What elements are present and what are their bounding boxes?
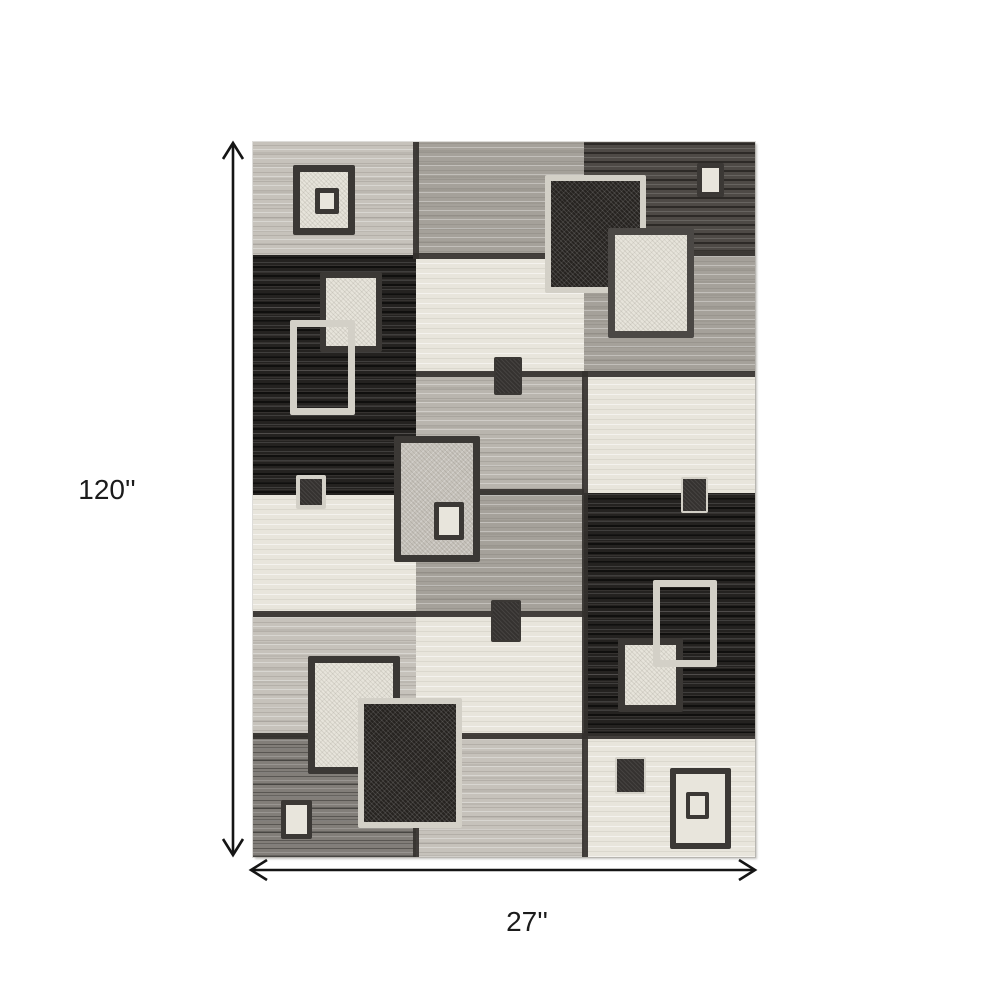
rug-seam bbox=[253, 611, 586, 617]
rug-motif-right-small-dark bbox=[681, 477, 708, 513]
rug-image bbox=[253, 142, 755, 857]
rug-panel-right-cream bbox=[584, 372, 755, 495]
rug-motif-br-small-dark bbox=[615, 757, 646, 794]
rug-motif-left-small-dark bbox=[296, 475, 326, 509]
width-dimension-label: 27'' bbox=[477, 908, 577, 936]
height-dimension-label: 120'' bbox=[57, 476, 157, 504]
rug-seam bbox=[413, 142, 419, 259]
rug-motif-right-outline-square bbox=[653, 580, 717, 667]
rug-motif-br-square-inner bbox=[686, 792, 709, 819]
rug-seam bbox=[582, 613, 588, 857]
rug-motif-bl-dark-square bbox=[358, 698, 462, 828]
rug-motif-center-small-dark-2 bbox=[491, 600, 521, 642]
rug-motif-center-big-inner bbox=[434, 502, 464, 540]
width-dimension-arrow bbox=[242, 852, 764, 888]
height-dimension-arrow bbox=[215, 132, 251, 868]
product-dimension-diagram: 120'' 27'' bbox=[0, 0, 1000, 1000]
rug-motif-center-small-dark bbox=[494, 357, 522, 395]
rug-motif-top-cream-square bbox=[608, 228, 694, 338]
rug-motif-tl-square-inner bbox=[315, 188, 339, 214]
rug-motif-tr-small-cream bbox=[697, 163, 724, 197]
rug-motif-center-big-square bbox=[394, 436, 480, 562]
rug-motif-bl-small-cream bbox=[281, 800, 312, 839]
rug-motif-left-outline-square bbox=[290, 320, 355, 415]
